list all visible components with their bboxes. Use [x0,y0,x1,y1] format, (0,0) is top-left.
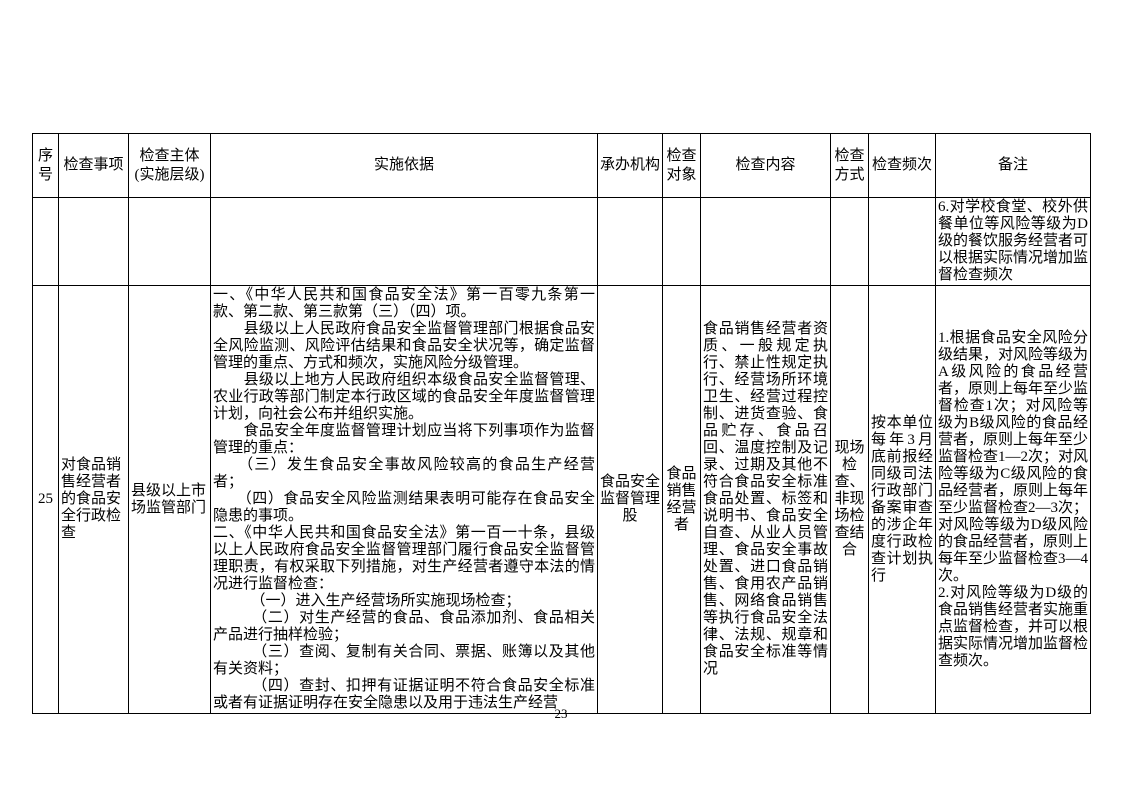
inspection-table: 序号 检查事项 检查主体 (实施层级) 实施依据 承办机构 检查对象 检查内容 … [32,133,1091,714]
header-frequency: 检查频次 [869,134,936,198]
table-row-carryover: 6.对学校食堂、校外供餐单位等风险等级为D级的餐饮服务经营者可以根据实际情况增加… [33,198,1091,286]
cell-basis [211,198,598,286]
header-remark: 备注 [936,134,1091,198]
cell-agency [598,198,663,286]
cell-agency: 食品安全监督管理股 [598,286,663,714]
cell-subject: 县级以上市场监管部门 [129,286,211,714]
cell-content: 食品销售经营者资质、一般规定执行、禁止性规定执行、经营场所环境卫生、经营过程控制… [701,286,831,714]
cell-target: 食品销售经营者 [663,286,701,714]
cell-remark: 1.根据食品安全风险分级结果，对风险等级为A级风险的食品经营者，原则上每年至少监… [936,286,1091,714]
document-page: 序号 检查事项 检查主体 (实施层级) 实施依据 承办机构 检查对象 检查内容 … [0,0,1122,793]
cell-seq: 25 [33,286,59,714]
table-header-row: 序号 检查事项 检查主体 (实施层级) 实施依据 承办机构 检查对象 检查内容 … [33,134,1091,198]
cell-frequency [869,198,936,286]
cell-subject [129,198,211,286]
header-target: 检查对象 [663,134,701,198]
header-seq: 序号 [33,134,59,198]
header-basis: 实施依据 [211,134,598,198]
header-agency: 承办机构 [598,134,663,198]
header-method: 检查方式 [831,134,869,198]
table-row-25: 25 对食品销售经营者的食品安全行政检查 县级以上市场监管部门 一、《中华人民共… [33,286,1091,714]
page-number: 23 [0,706,1122,722]
cell-method: 现场检查、非现场检查结合 [831,286,869,714]
cell-item: 对食品销售经营者的食品安全行政检查 [59,286,129,714]
cell-remark: 6.对学校食堂、校外供餐单位等风险等级为D级的餐饮服务经营者可以根据实际情况增加… [936,198,1091,286]
cell-item [59,198,129,286]
cell-frequency: 按本单位每年3月底前报经同级司法行政部门备案审查的涉企年度行政检查计划执行 [869,286,936,714]
cell-method [831,198,869,286]
cell-basis: 一、《中华人民共和国食品安全法》第一百零九条第一款、第二款、第三款第（三）（四）… [211,286,598,714]
cell-content [701,198,831,286]
header-subject: 检查主体 (实施层级) [129,134,211,198]
cell-target [663,198,701,286]
cell-seq [33,198,59,286]
header-item: 检查事项 [59,134,129,198]
header-content: 检查内容 [701,134,831,198]
